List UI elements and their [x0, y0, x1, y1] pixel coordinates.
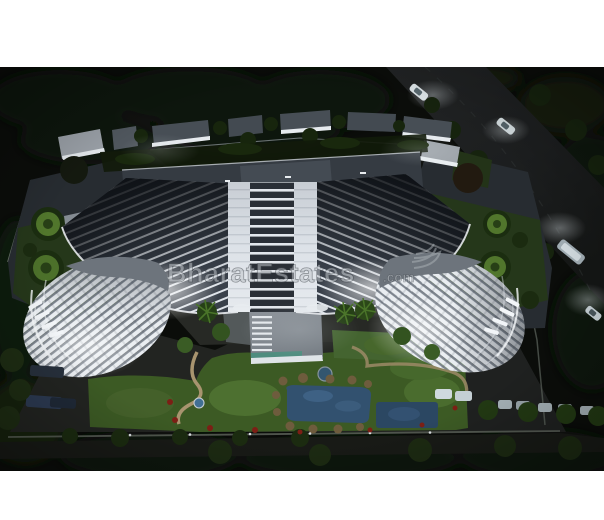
- svg-text:.com: .com: [383, 270, 415, 285]
- svg-text:BharatEstates: BharatEstates: [167, 258, 355, 288]
